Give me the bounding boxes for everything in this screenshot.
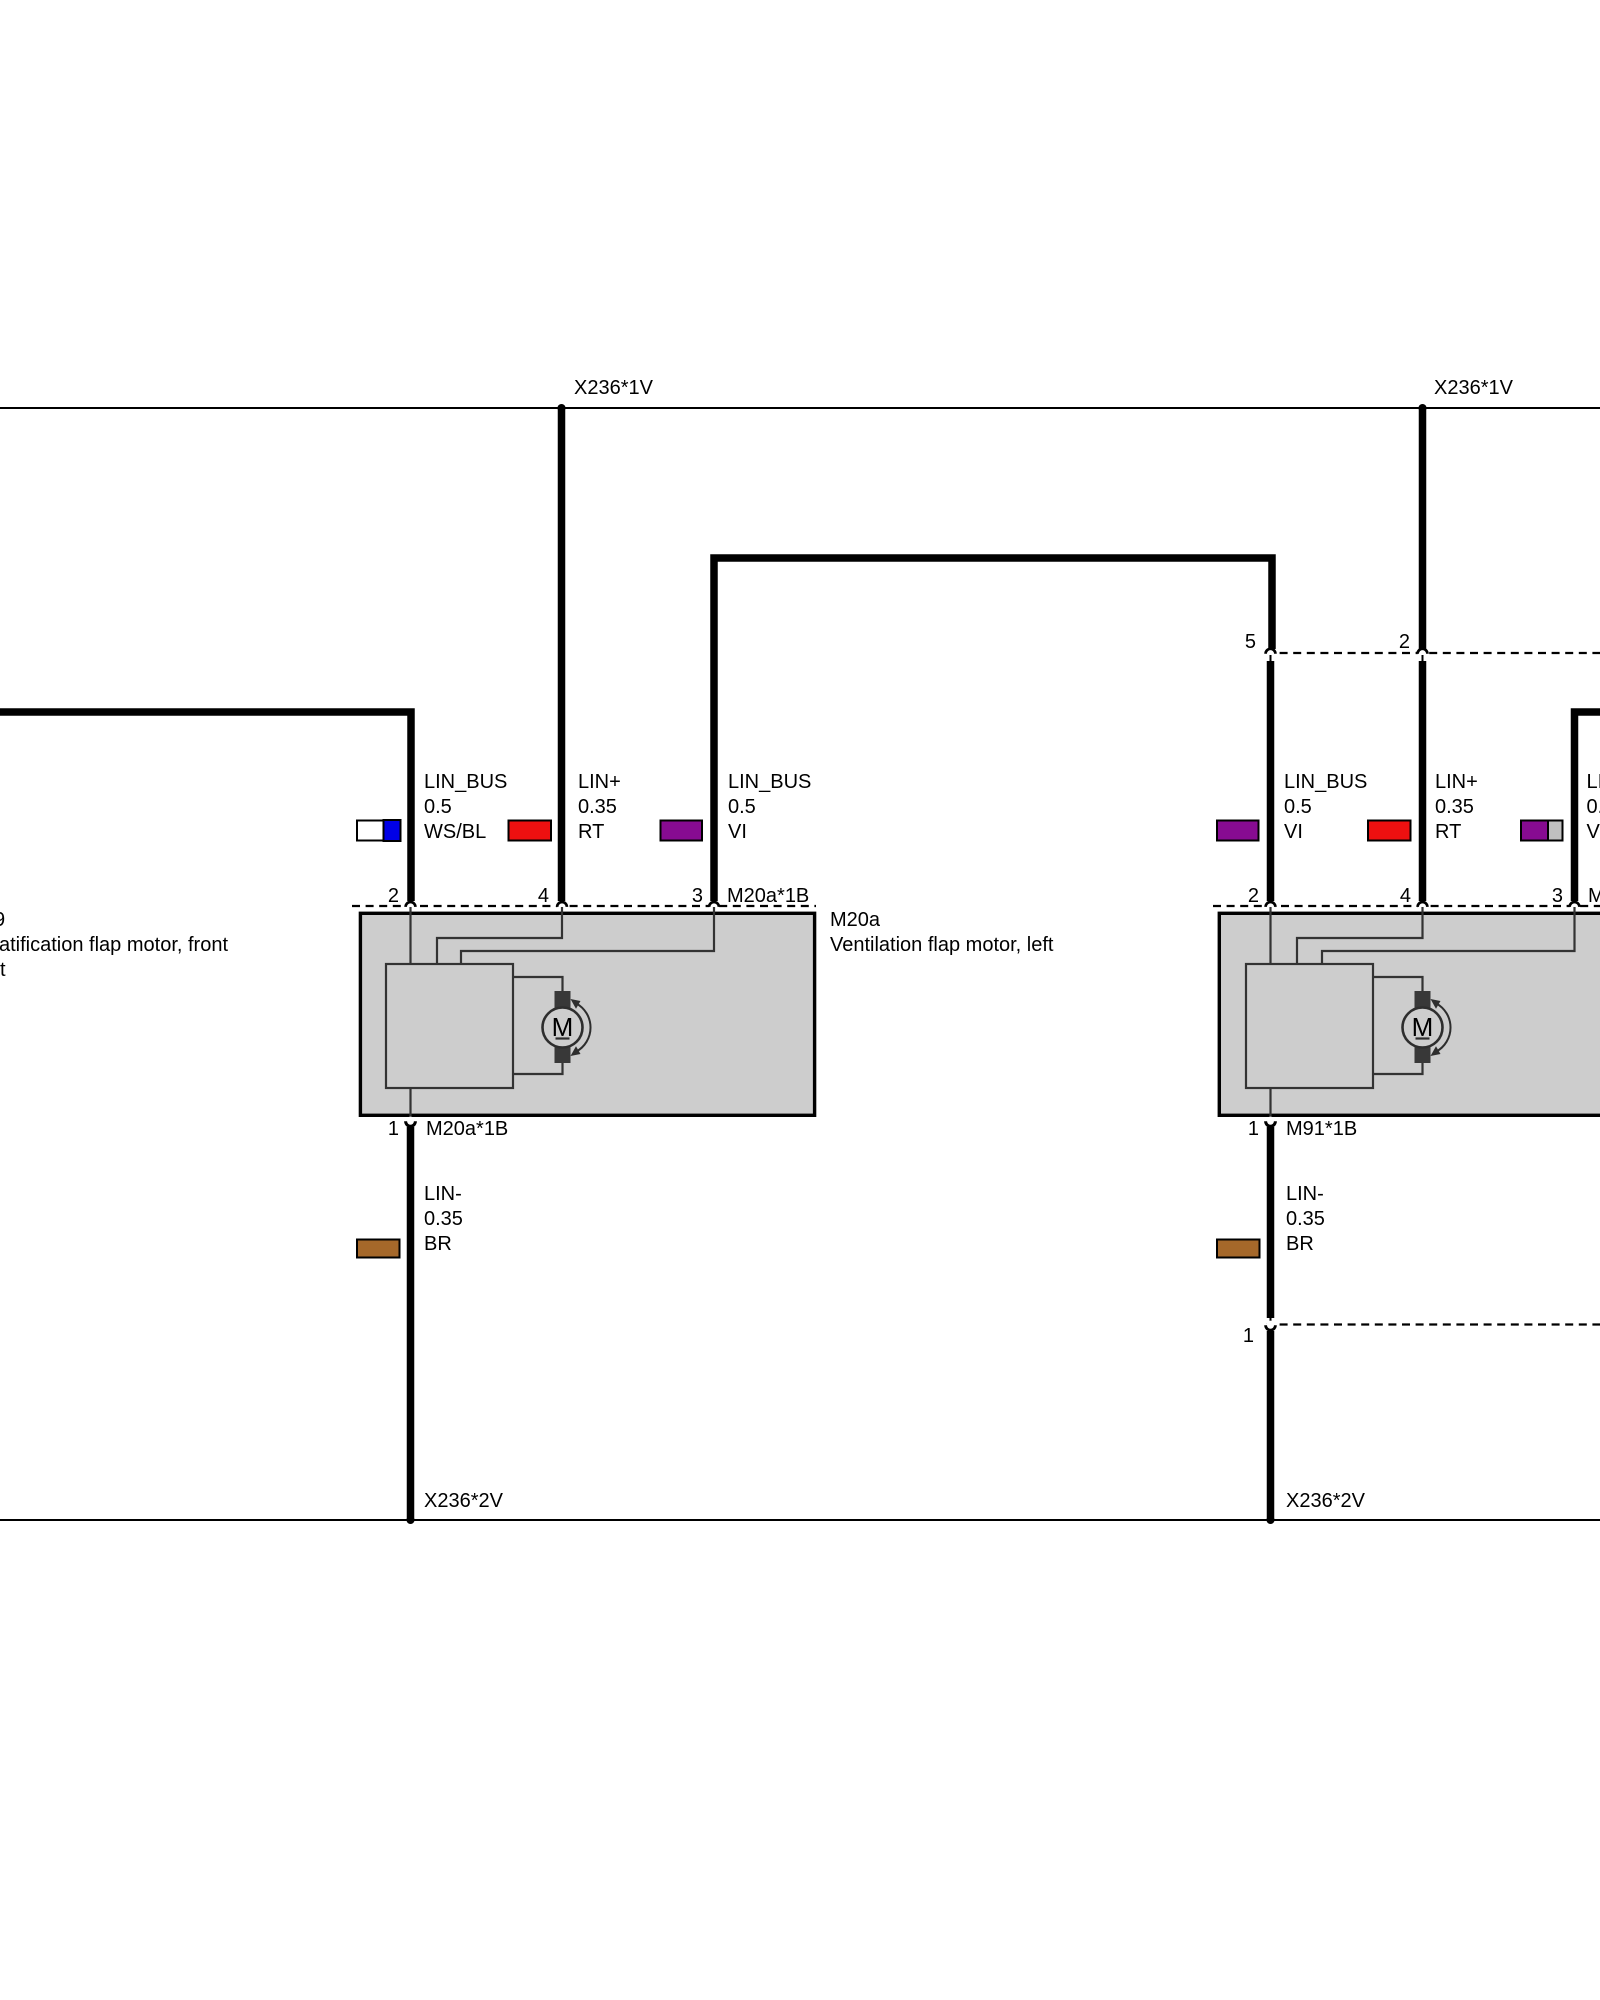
- svg-text:RT: RT: [1435, 821, 1461, 843]
- svg-text:0.35: 0.35: [1435, 796, 1474, 818]
- svg-text:5: 5: [1245, 631, 1256, 653]
- svg-text:0.35: 0.35: [578, 796, 617, 818]
- svg-text:2: 2: [1248, 885, 1259, 907]
- svg-text:LIN_BUS: LIN_BUS: [728, 771, 811, 793]
- svg-text:LIN+: LIN+: [1435, 771, 1478, 793]
- svg-text:Ventilation flap motor, left: Ventilation flap motor, left: [830, 934, 1054, 956]
- svg-text:M91*1B: M91*1B: [1286, 1118, 1357, 1140]
- svg-text:BR: BR: [424, 1233, 452, 1255]
- svg-text:t: t: [0, 959, 6, 981]
- svg-text:2: 2: [388, 885, 399, 907]
- svg-text:2: 2: [1399, 631, 1410, 653]
- svg-text:4: 4: [1400, 885, 1411, 907]
- svg-text:M91*1B: M91*1B: [1588, 885, 1600, 907]
- svg-text:LIN_BUS: LIN_BUS: [424, 771, 507, 793]
- svg-text:LIN-: LIN-: [424, 1183, 462, 1205]
- svg-text:9: 9: [0, 909, 5, 931]
- svg-text:3: 3: [692, 885, 703, 907]
- svg-text:WS/BL: WS/BL: [424, 821, 486, 843]
- svg-text:LIN+: LIN+: [578, 771, 621, 793]
- svg-text:X236*1V: X236*1V: [1434, 377, 1514, 399]
- svg-text:X236*2V: X236*2V: [1286, 1490, 1366, 1512]
- svg-text:VI: VI: [728, 821, 747, 843]
- svg-text:M20a: M20a: [830, 909, 881, 931]
- svg-text:M20a*1B: M20a*1B: [426, 1118, 508, 1140]
- svg-text:3: 3: [1552, 885, 1563, 907]
- svg-text:M20a*1B: M20a*1B: [727, 885, 809, 907]
- svg-text:BR: BR: [1286, 1233, 1314, 1255]
- svg-text:VI: VI: [1284, 821, 1303, 843]
- svg-text:RT: RT: [578, 821, 604, 843]
- svg-text:0.5: 0.5: [1587, 796, 1600, 818]
- svg-text:LIN_BUS: LIN_BUS: [1284, 771, 1367, 793]
- svg-text:1: 1: [388, 1118, 399, 1140]
- svg-text:0.35: 0.35: [424, 1208, 463, 1230]
- svg-text:0.5: 0.5: [728, 796, 756, 818]
- svg-text:X236*1V: X236*1V: [574, 377, 654, 399]
- svg-text:0.5: 0.5: [424, 796, 452, 818]
- svg-text:atification flap motor, front: atification flap motor, front: [0, 934, 228, 956]
- svg-text:LIN_BUS: LIN_BUS: [1587, 771, 1600, 793]
- svg-text:4: 4: [538, 885, 549, 907]
- svg-text:1: 1: [1248, 1118, 1259, 1140]
- svg-text:X236*2V: X236*2V: [424, 1490, 504, 1512]
- svg-text:VI: VI: [1587, 821, 1600, 843]
- svg-text:LIN-: LIN-: [1286, 1183, 1324, 1205]
- svg-text:0.35: 0.35: [1286, 1208, 1325, 1230]
- svg-text:0.5: 0.5: [1284, 796, 1312, 818]
- svg-text:1: 1: [1243, 1325, 1254, 1347]
